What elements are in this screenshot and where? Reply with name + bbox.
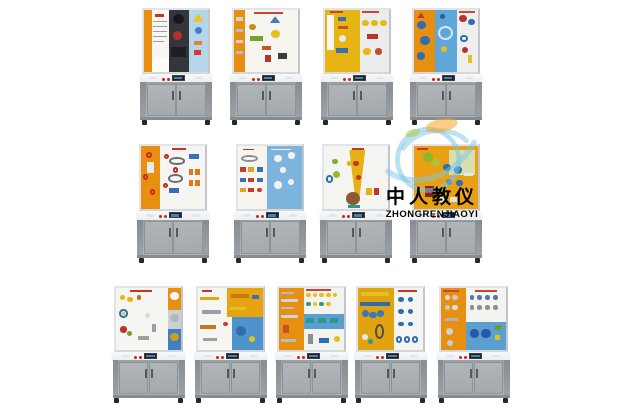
display-case xyxy=(277,286,347,352)
display-cabinet-row3-cabinet5 xyxy=(436,286,511,403)
exhibit-item xyxy=(155,14,164,16)
display-panel xyxy=(245,10,299,72)
exhibit-item xyxy=(326,302,331,306)
door-handle-icon xyxy=(151,369,153,378)
caster-wheel-icon xyxy=(202,258,207,263)
speaker-vent-icon xyxy=(195,77,204,80)
exhibit-item xyxy=(189,180,194,186)
caster-wheel-icon xyxy=(205,120,210,125)
cabinet-side-edge xyxy=(421,360,427,398)
cabinet-base xyxy=(137,220,208,258)
exhibit-item xyxy=(375,324,384,339)
speaker-vent-icon xyxy=(465,77,474,80)
exhibit-item xyxy=(281,307,294,309)
display-screen-icon xyxy=(469,353,482,359)
speaker-vent-icon xyxy=(419,214,428,217)
exhibit-item xyxy=(153,26,167,27)
exhibit-item xyxy=(274,155,282,163)
exhibit-item xyxy=(366,188,371,195)
exhibit-item xyxy=(348,205,360,208)
exhibit-item xyxy=(412,336,419,342)
display-cabinet-row1-cabinet2 xyxy=(229,8,303,125)
cabinet-door xyxy=(173,221,202,254)
exhibit-item xyxy=(441,46,447,52)
display-cabinet-row1-cabinet4 xyxy=(409,8,483,125)
power-button-icon xyxy=(261,215,264,218)
exhibit-item xyxy=(417,148,427,150)
control-panel xyxy=(410,74,482,82)
power-button-icon xyxy=(342,215,345,218)
caster-wheel-icon xyxy=(178,398,183,403)
exhibit-item xyxy=(240,178,246,182)
exhibit-item xyxy=(330,318,338,323)
cabinet-base xyxy=(438,360,510,398)
speaker-vent-icon xyxy=(376,77,385,80)
cabinet-plinth xyxy=(140,117,211,120)
caster-wheel-icon xyxy=(341,398,346,403)
door-handle-icon xyxy=(360,91,362,100)
door-handle-icon xyxy=(145,369,147,378)
display-case xyxy=(236,144,305,211)
exhibit-item xyxy=(468,55,472,64)
exhibit-item xyxy=(470,329,479,338)
exhibit-item xyxy=(308,334,313,344)
power-button-icon xyxy=(343,78,346,81)
cabinet-door xyxy=(328,84,357,116)
exhibit-item xyxy=(173,167,178,172)
cabinet-door xyxy=(444,362,474,394)
exhibit-item xyxy=(326,175,334,183)
caster-wheel-icon xyxy=(322,258,327,263)
exhibit-item xyxy=(459,15,467,22)
exhibit-item xyxy=(447,340,453,346)
power-button-icon xyxy=(432,78,435,81)
exhibit-item xyxy=(446,328,453,335)
control-panel xyxy=(230,74,302,82)
exhibit-item xyxy=(330,11,343,13)
exhibit-item xyxy=(362,20,368,26)
exhibit-item xyxy=(361,292,389,296)
cabinet-door xyxy=(266,84,295,116)
exhibit-item xyxy=(363,48,370,55)
door-handle-icon xyxy=(470,369,472,378)
catalog-image: 中人教仪 ZHONGRENJIAOYI xyxy=(0,0,624,411)
door-handle-icon xyxy=(179,91,181,100)
exhibit-item xyxy=(306,302,311,306)
cabinet-door xyxy=(446,221,475,254)
speaker-vent-icon xyxy=(285,77,294,80)
cabinet-side-edge xyxy=(504,360,510,398)
cabinet-door xyxy=(241,221,270,254)
cabinet-side-edge xyxy=(140,82,146,120)
exhibit-item xyxy=(333,171,340,178)
exhibit-item xyxy=(248,167,254,171)
exhibit-item xyxy=(202,310,222,314)
power-button-icon xyxy=(257,78,260,81)
exhibit-item xyxy=(454,166,462,174)
caster-wheel-icon xyxy=(232,120,237,125)
cabinet-door xyxy=(231,362,261,394)
display-panel xyxy=(449,150,475,175)
cabinet-base xyxy=(140,82,211,120)
exhibit-item xyxy=(249,336,255,342)
display-case xyxy=(322,144,391,211)
display-cabinet-row3-cabinet2 xyxy=(193,286,268,403)
exhibit-item xyxy=(271,149,290,151)
cabinet-side-edge xyxy=(113,360,119,398)
caster-wheel-icon xyxy=(277,398,282,403)
cabinet-door xyxy=(282,362,312,394)
exhibit-item xyxy=(353,161,358,166)
cabinet-side-edge xyxy=(203,220,209,258)
caster-wheel-icon xyxy=(385,258,390,263)
display-case xyxy=(439,286,509,352)
exhibit-item xyxy=(262,46,271,50)
display-panel xyxy=(227,288,264,317)
exhibit-item xyxy=(371,20,377,26)
exhibit-item xyxy=(332,159,338,165)
exhibit-item xyxy=(338,26,348,29)
exhibit-item xyxy=(195,169,200,175)
speaker-vent-icon xyxy=(330,77,339,80)
display-cabinet-row2-cabinet4 xyxy=(409,144,483,263)
power-button-icon xyxy=(459,356,462,359)
door-handle-icon xyxy=(233,369,235,378)
caster-wheel-icon xyxy=(412,258,417,263)
display-case xyxy=(139,144,208,211)
exhibit-item xyxy=(468,19,474,25)
exhibit-item xyxy=(143,174,149,180)
caster-wheel-icon xyxy=(196,398,201,403)
exhibit-item xyxy=(375,48,381,54)
exhibit-item xyxy=(346,192,360,206)
exhibit-item xyxy=(171,47,185,57)
power-button-icon xyxy=(376,356,379,359)
exhibit-item xyxy=(153,41,163,42)
cabinet-base xyxy=(320,220,391,258)
exhibit-item xyxy=(146,152,152,158)
display-screen-icon xyxy=(352,212,365,218)
door-handle-icon xyxy=(442,228,444,237)
cabinet-plinth xyxy=(321,117,392,120)
exhibit-item xyxy=(318,318,326,323)
exhibit-item xyxy=(173,14,184,25)
caster-wheel-icon xyxy=(139,258,144,263)
cabinet-plinth xyxy=(137,255,208,258)
exhibit-item xyxy=(250,36,263,41)
display-screen-icon xyxy=(144,353,157,359)
power-button-icon xyxy=(256,215,259,218)
cabinet-plinth xyxy=(410,117,481,120)
display-case xyxy=(232,8,301,74)
control-panel xyxy=(234,211,306,219)
cabinet-side-edge xyxy=(386,220,392,258)
speaker-vent-icon xyxy=(409,355,418,358)
display-panel xyxy=(267,146,302,209)
cabinet-side-edge xyxy=(410,220,416,258)
caster-wheel-icon xyxy=(439,398,444,403)
door-handle-icon xyxy=(227,369,229,378)
exhibit-item xyxy=(147,162,153,172)
speaker-vent-icon xyxy=(249,355,258,358)
cabinet-side-edge xyxy=(261,360,267,398)
cabinet-plinth xyxy=(195,395,267,398)
exhibit-item xyxy=(288,179,294,185)
exhibit-item xyxy=(240,188,246,192)
speaker-vent-icon xyxy=(149,77,158,80)
display-cabinet-row2-cabinet3 xyxy=(319,144,393,263)
door-handle-icon xyxy=(353,91,355,100)
door-handle-icon xyxy=(314,369,316,378)
cabinet-side-edge xyxy=(342,360,348,398)
cabinet-base xyxy=(113,360,185,398)
cabinet-side-edge xyxy=(438,360,444,398)
speaker-vent-icon xyxy=(167,355,176,358)
display-screen-icon xyxy=(442,75,455,81)
exhibit-item xyxy=(495,335,501,339)
exhibit-item xyxy=(443,290,459,292)
exhibit-item xyxy=(153,31,167,32)
exhibit-item xyxy=(398,309,403,314)
cabinet-side-edge xyxy=(320,220,326,258)
exhibit-item xyxy=(278,53,287,59)
exhibit-item xyxy=(168,174,184,183)
display-cabinet-row3-cabinet4 xyxy=(353,286,428,403)
display-panel xyxy=(435,10,457,72)
display-screen-icon xyxy=(262,75,275,81)
exhibit-item xyxy=(241,155,258,162)
cabinet-door xyxy=(327,221,356,254)
power-button-icon xyxy=(162,78,165,81)
cabinet-door xyxy=(149,362,179,394)
caster-wheel-icon xyxy=(323,120,328,125)
door-handle-icon xyxy=(308,369,310,378)
exhibit-item xyxy=(477,305,482,309)
exhibit-item xyxy=(257,188,262,192)
cabinet-side-edge xyxy=(410,82,416,120)
exhibit-item xyxy=(367,34,377,40)
door-handle-icon xyxy=(476,369,478,378)
speaker-vent-icon xyxy=(446,355,455,358)
exhibit-item xyxy=(465,190,471,196)
caster-wheel-icon xyxy=(420,398,425,403)
cabinet-plinth xyxy=(234,255,305,258)
door-handle-icon xyxy=(176,228,178,237)
exhibit-item xyxy=(306,318,314,323)
speaker-vent-icon xyxy=(289,214,298,217)
exhibit-item xyxy=(470,305,475,309)
display-case xyxy=(356,286,426,352)
display-case xyxy=(323,8,392,74)
exhibit-item xyxy=(189,154,199,159)
exhibit-item xyxy=(408,309,413,314)
display-screen-icon xyxy=(353,75,366,81)
exhibit-item xyxy=(257,167,263,171)
exhibit-item xyxy=(485,305,490,309)
exhibit-item xyxy=(338,17,346,21)
exhibit-item xyxy=(445,318,458,321)
exhibit-item xyxy=(319,338,328,343)
exhibit-item xyxy=(369,312,376,319)
cabinet-plinth xyxy=(438,395,510,398)
exhibit-item xyxy=(194,41,202,45)
caster-wheel-icon xyxy=(356,398,361,403)
cabinet-door xyxy=(391,362,421,394)
cabinet-door xyxy=(357,84,386,116)
speaker-vent-icon xyxy=(146,214,155,217)
exhibit-item xyxy=(398,290,416,292)
speaker-vent-icon xyxy=(284,355,293,358)
cabinet-side-edge xyxy=(355,360,361,398)
cabinet-base xyxy=(321,82,392,120)
exhibit-item xyxy=(200,297,218,301)
door-handle-icon xyxy=(352,228,354,237)
door-handle-icon xyxy=(273,228,275,237)
power-button-icon xyxy=(139,356,142,359)
cabinet-door xyxy=(237,84,266,116)
power-button-icon xyxy=(432,215,435,218)
cabinet-door xyxy=(144,221,173,254)
door-handle-icon xyxy=(449,91,451,100)
control-panel xyxy=(140,74,212,82)
caster-wheel-icon xyxy=(299,258,304,263)
display-panel xyxy=(152,12,169,57)
control-panel xyxy=(275,352,348,360)
cabinet-door xyxy=(474,362,504,394)
exhibit-item xyxy=(493,305,498,309)
control-panel xyxy=(112,352,185,360)
control-panel xyxy=(410,211,482,219)
cabinet-base xyxy=(276,360,348,398)
exhibit-item xyxy=(150,189,156,195)
display-screen-icon xyxy=(226,353,239,359)
exhibit-item xyxy=(408,297,413,302)
cabinet-side-edge xyxy=(476,220,482,258)
cabinet-plinth xyxy=(230,117,301,120)
exhibit-item xyxy=(169,157,185,165)
exhibit-item xyxy=(138,336,149,339)
exhibit-item xyxy=(248,188,254,192)
power-button-icon xyxy=(437,78,440,81)
exhibit-item xyxy=(281,315,298,317)
exhibit-item xyxy=(153,36,167,37)
exhibit-item xyxy=(170,333,179,341)
exhibit-item xyxy=(130,290,152,292)
caster-wheel-icon xyxy=(475,120,480,125)
exhibit-item xyxy=(459,11,475,13)
exhibit-item xyxy=(236,29,243,32)
door-handle-icon xyxy=(387,369,389,378)
power-button-icon xyxy=(134,356,137,359)
speaker-vent-icon xyxy=(243,214,252,217)
door-handle-icon xyxy=(266,228,268,237)
caster-wheel-icon xyxy=(295,120,300,125)
exhibit-item xyxy=(164,154,169,159)
exhibit-item xyxy=(195,180,200,186)
cabinet-door xyxy=(446,84,475,116)
control-panel xyxy=(321,74,393,82)
exhibit-item xyxy=(475,290,497,292)
cabinet-side-edge xyxy=(230,82,236,120)
cabinet-plinth xyxy=(113,395,185,398)
exhibit-item xyxy=(153,21,167,22)
cabinet-side-edge xyxy=(300,220,306,258)
exhibit-item xyxy=(281,299,298,301)
exhibit-item xyxy=(265,55,271,62)
power-button-icon xyxy=(302,356,305,359)
exhibit-item xyxy=(380,20,386,26)
exhibit-item xyxy=(248,178,254,182)
cabinet-plinth xyxy=(276,395,348,398)
exhibit-item xyxy=(281,292,294,294)
power-button-icon xyxy=(347,215,350,218)
cabinet-side-edge xyxy=(137,220,143,258)
exhibit-item xyxy=(352,148,364,150)
display-cabinet-row2-cabinet2 xyxy=(233,144,307,263)
exhibit-item xyxy=(398,297,403,302)
exhibit-item xyxy=(404,336,411,342)
exhibit-item xyxy=(450,197,457,203)
power-button-icon xyxy=(297,356,300,359)
display-screen-icon xyxy=(169,212,182,218)
exhibit-item xyxy=(485,295,490,299)
exhibit-item xyxy=(281,339,295,342)
door-handle-icon xyxy=(262,91,264,100)
display-screen-icon xyxy=(266,212,279,218)
exhibit-item xyxy=(254,12,283,14)
exhibit-item xyxy=(127,297,132,302)
exhibit-item xyxy=(464,173,472,176)
cabinet-door xyxy=(417,221,446,254)
exhibit-item xyxy=(243,149,255,151)
cabinet-door xyxy=(361,362,391,394)
cabinet-side-edge xyxy=(321,82,327,120)
exhibit-item xyxy=(432,159,440,167)
caster-wheel-icon xyxy=(475,258,480,263)
exhibit-item xyxy=(347,161,352,165)
exhibit-item xyxy=(231,294,249,298)
caster-wheel-icon xyxy=(236,258,241,263)
cabinet-door xyxy=(119,362,149,394)
cabinet-door xyxy=(270,221,299,254)
power-button-icon xyxy=(437,215,440,218)
exhibit-item xyxy=(440,197,447,203)
exhibit-item xyxy=(271,30,279,38)
display-case xyxy=(114,286,184,352)
cabinet-side-edge xyxy=(387,82,393,120)
control-panel xyxy=(437,352,510,360)
display-screen-icon xyxy=(307,353,320,359)
power-button-icon xyxy=(221,356,224,359)
cabinet-door xyxy=(176,84,205,116)
speaker-vent-icon xyxy=(239,77,248,80)
door-handle-icon xyxy=(393,369,395,378)
display-panel xyxy=(358,288,394,350)
cabinet-base xyxy=(195,360,267,398)
cabinet-side-edge xyxy=(195,360,201,398)
exhibit-item xyxy=(152,324,155,332)
caster-wheel-icon xyxy=(142,120,147,125)
door-handle-icon xyxy=(169,228,171,237)
cabinet-base xyxy=(410,82,481,120)
exhibit-item xyxy=(362,11,379,13)
cabinet-base xyxy=(234,220,305,258)
exhibit-item xyxy=(274,181,282,189)
exhibit-item xyxy=(360,302,390,306)
exhibit-item xyxy=(137,295,142,299)
display-screen-icon xyxy=(172,75,185,81)
exhibit-item xyxy=(240,167,246,171)
